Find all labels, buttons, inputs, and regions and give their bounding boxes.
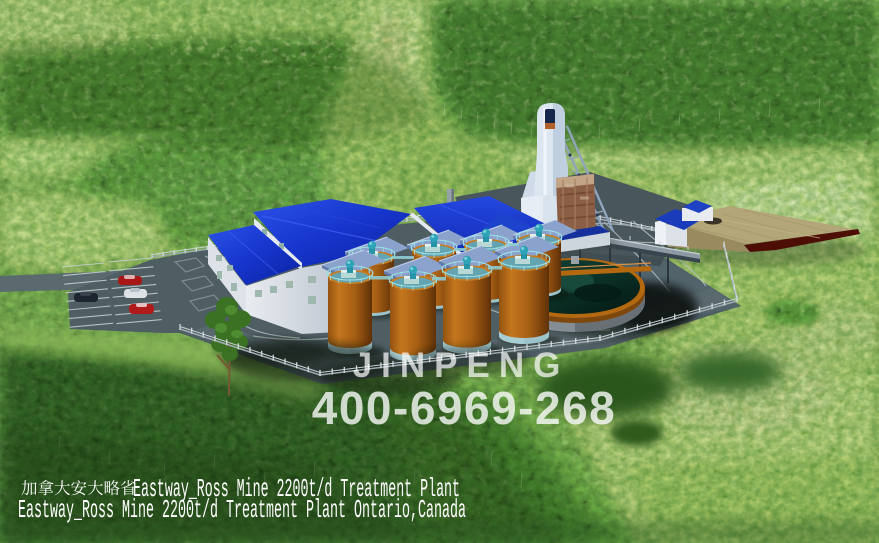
svg-text:JINPENG: JINPENG xyxy=(353,346,570,385)
svg-text:Eastway_Ross Mine 2200t/d Trea: Eastway_Ross Mine 2200t/d Treatment Plan… xyxy=(18,495,466,525)
svg-text:400-6969-268: 400-6969-268 xyxy=(312,382,616,434)
